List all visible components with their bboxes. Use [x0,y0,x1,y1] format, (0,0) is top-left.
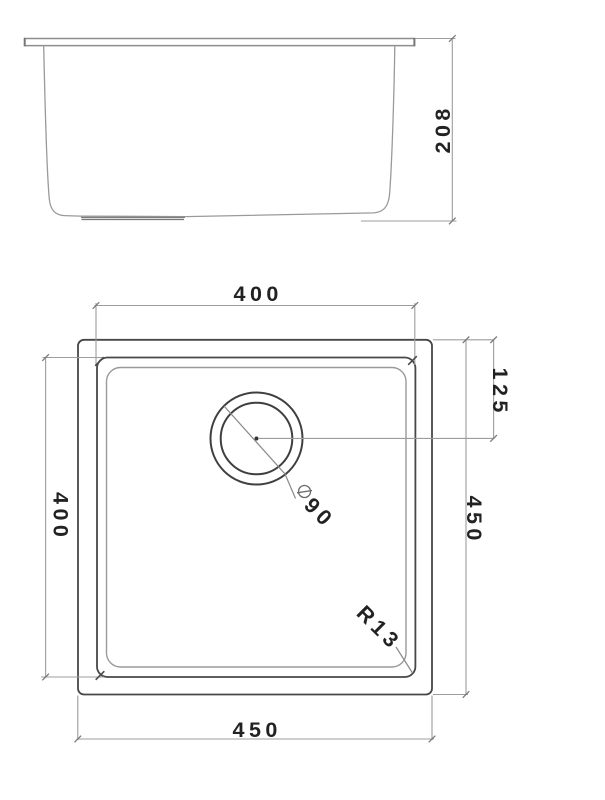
svg-text:125: 125 [488,368,512,417]
svg-text:400: 400 [49,492,73,541]
svg-text:400: 400 [234,282,283,306]
svg-text:208: 208 [431,104,455,153]
svg-text:450: 450 [462,496,486,545]
svg-text:450: 450 [233,718,282,742]
svg-text:R13: R13 [352,601,406,655]
svg-text:90: 90 [299,493,339,533]
